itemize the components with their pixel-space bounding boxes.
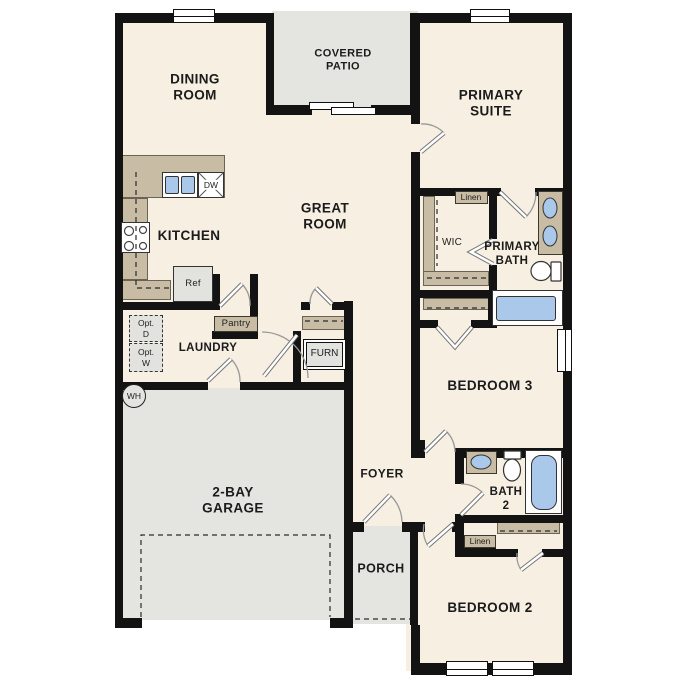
- wall: [411, 440, 425, 458]
- wall: [489, 196, 497, 239]
- wall: [455, 547, 496, 557]
- label-refrigerator: Ref: [185, 278, 200, 290]
- kitchen-counter-bottom: [121, 280, 171, 300]
- wall: [266, 105, 312, 115]
- label-laundry: LAUNDRY: [179, 341, 238, 355]
- wall: [489, 265, 497, 291]
- wall: [115, 302, 220, 310]
- optional-dryer-box: Opt. D: [129, 315, 163, 342]
- wall: [452, 522, 461, 532]
- wall: [240, 382, 353, 390]
- wall: [455, 515, 563, 523]
- primary-bath-vanity: [538, 191, 563, 255]
- label-linen-hall: Linen: [470, 536, 491, 546]
- wall: [411, 290, 497, 298]
- label-bedroom2: BEDROOM 2: [447, 600, 532, 616]
- window-bedroom2-right: [492, 661, 534, 676]
- furnace-label: FURN: [311, 348, 339, 360]
- window-dining: [173, 9, 215, 23]
- wall: [411, 107, 420, 124]
- wall: [411, 625, 420, 675]
- window-bedroom3: [557, 329, 572, 372]
- wall: [266, 13, 274, 108]
- label-linen-primary: Linen: [461, 192, 482, 202]
- water-heater: WH: [122, 384, 146, 408]
- primary-tub: [496, 296, 556, 321]
- cooktop: [121, 222, 150, 253]
- bath2-vanity: [466, 451, 497, 474]
- wall: [301, 302, 310, 310]
- label-dishwasher: DW: [203, 180, 219, 190]
- label-wic: WIC: [442, 237, 462, 249]
- sink-basin-right: [181, 176, 195, 194]
- label-great-room: GREAT ROOM: [301, 201, 349, 234]
- coat-closet-shelf: [302, 316, 346, 330]
- floor-plan: Opt. D Opt. W FURN WH: [0, 0, 687, 687]
- label-garage: 2-BAY GARAGE: [202, 485, 264, 518]
- wic-shelf-bottom: [423, 271, 489, 286]
- water-heater-label: WH: [127, 391, 141, 401]
- optional-dryer-label: Opt. D: [138, 318, 154, 339]
- label-primary-bath: PRIMARY BATH: [484, 240, 539, 268]
- label-dining-room: DINING ROOM: [170, 72, 220, 105]
- wall: [410, 13, 420, 108]
- optional-washer-label: Opt. W: [138, 347, 154, 368]
- wall: [410, 522, 418, 625]
- window-bedroom2-left: [446, 661, 488, 676]
- wall: [115, 13, 123, 628]
- label-foyer: FOYER: [360, 467, 403, 482]
- wall: [411, 320, 438, 328]
- wall: [212, 331, 258, 339]
- wall: [332, 302, 353, 310]
- label-kitchen: KITCHEN: [158, 228, 221, 244]
- label-primary-suite: PRIMARY SUITE: [459, 88, 524, 121]
- wall: [455, 458, 464, 484]
- wall: [212, 274, 220, 302]
- sliding-door-panel-right: [331, 107, 376, 115]
- optional-washer-box: Opt. W: [129, 343, 163, 372]
- wall: [115, 618, 142, 628]
- label-covered-patio: COVERED PATIO: [314, 48, 371, 75]
- wall: [293, 331, 301, 382]
- window-primary-suite: [470, 9, 510, 23]
- wall: [542, 549, 563, 557]
- sink-basin-left: [165, 176, 179, 194]
- wall: [495, 549, 518, 557]
- label-bath2: BATH 2: [490, 485, 523, 513]
- wall: [330, 618, 345, 628]
- furnace-box: FURN: [303, 339, 346, 370]
- bedroom3-closet-shelf: [423, 298, 489, 310]
- label-porch: PORCH: [357, 561, 404, 576]
- label-pantry: Pantry: [222, 318, 251, 330]
- bedroom2-closet-shelf: [497, 522, 560, 534]
- bath2-tub: [531, 455, 557, 510]
- label-bedroom3: BEDROOM 3: [447, 378, 532, 394]
